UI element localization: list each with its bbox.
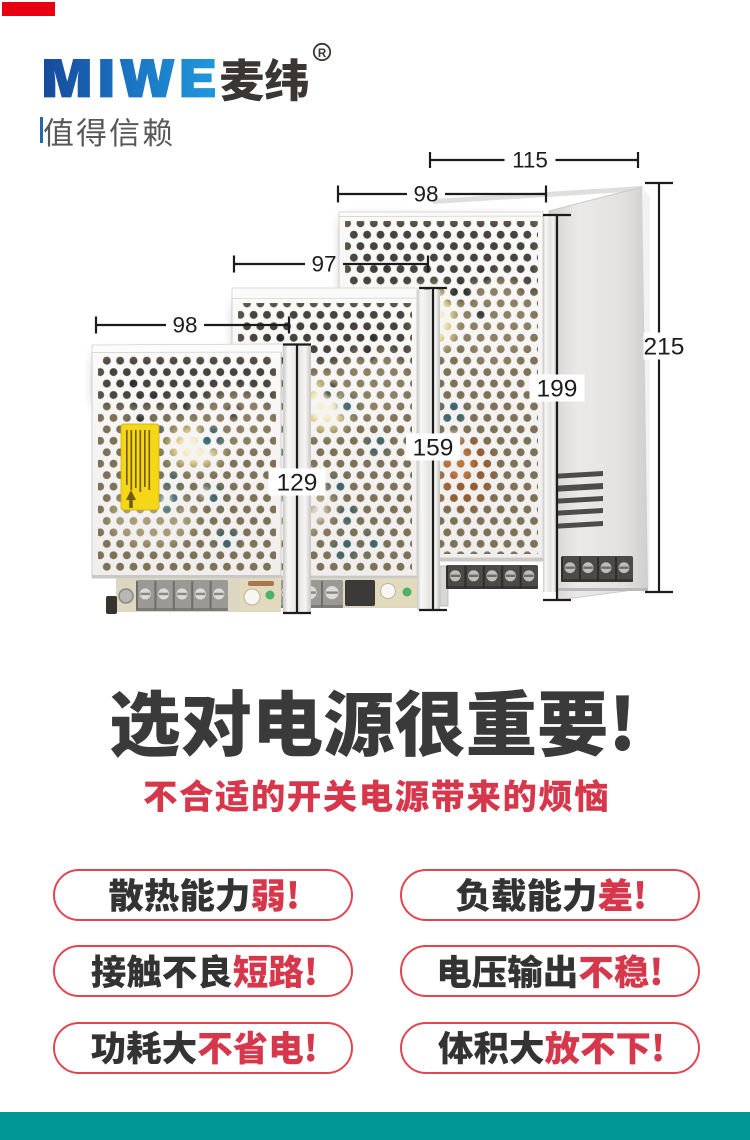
svg-text:98: 98 [413, 182, 438, 207]
svg-text:115: 115 [512, 148, 548, 173]
svg-text:215: 215 [644, 334, 685, 361]
svg-text:98: 98 [172, 313, 197, 338]
svg-text:R: R [318, 48, 327, 60]
svg-text:159: 159 [413, 435, 454, 462]
svg-text:199: 199 [537, 376, 578, 403]
svg-text:97: 97 [311, 252, 336, 277]
svg-text:129: 129 [277, 470, 318, 497]
